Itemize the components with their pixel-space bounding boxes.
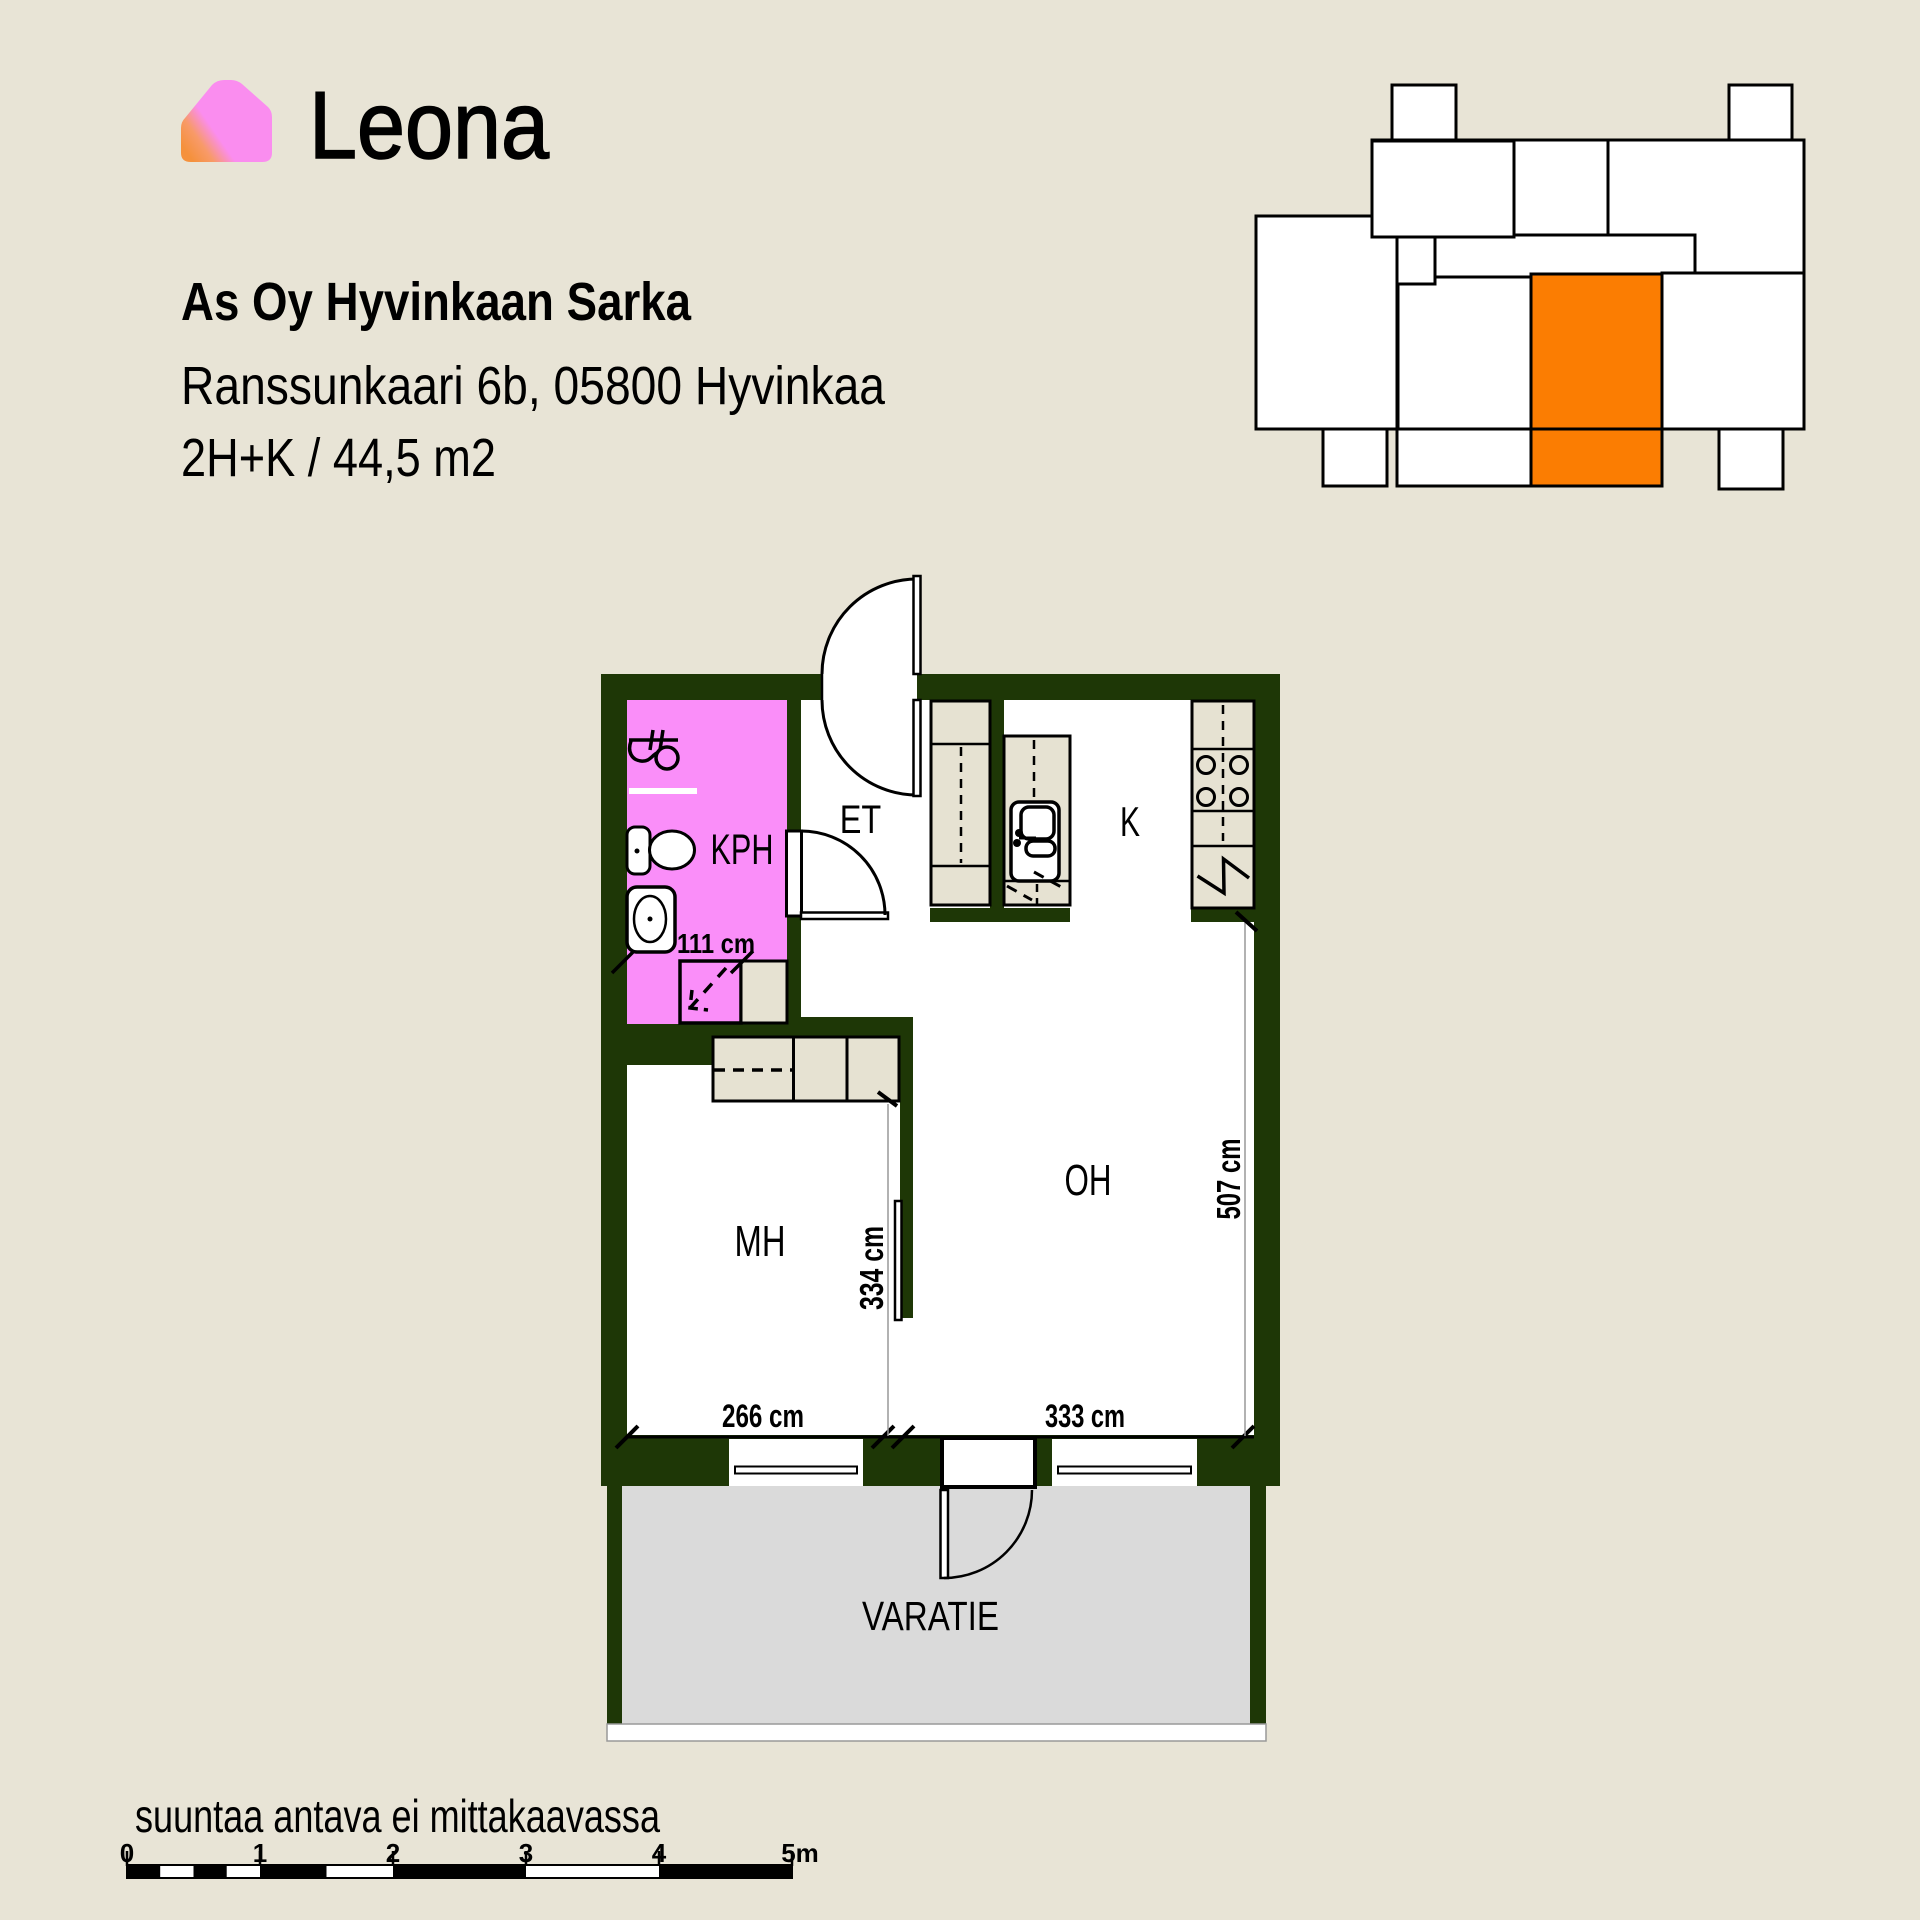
svg-text:334 cm: 334 cm [853,1226,890,1310]
svg-text:OH: OH [1065,1156,1112,1205]
svg-text:ET: ET [840,798,882,842]
svg-text:As Oy Hyvinkaan Sarka: As Oy Hyvinkaan Sarka [181,272,692,332]
svg-text:2H+K / 44,5 m2: 2H+K / 44,5 m2 [181,428,496,488]
svg-text:Ranssunkaari 6b, 05800 Hyvinka: Ranssunkaari 6b, 05800 Hyvinkaa [181,356,886,416]
svg-text:Leona: Leona [309,72,550,179]
svg-text:0: 0 [120,1838,134,1868]
svg-text:266 cm: 266 cm [722,1398,804,1434]
svg-text:3: 3 [519,1838,533,1868]
svg-text:VARATIE: VARATIE [862,1593,999,1639]
svg-text:KPH: KPH [711,826,774,874]
svg-text:333 cm: 333 cm [1045,1398,1125,1434]
svg-text:5m: 5m [781,1838,819,1868]
svg-text:2: 2 [386,1838,400,1868]
svg-text:K: K [1120,798,1140,845]
svg-text:4: 4 [652,1838,667,1868]
svg-text:111 cm: 111 cm [677,928,755,959]
svg-text:suuntaa antava ei mittakaavass: suuntaa antava ei mittakaavassa [135,1790,660,1842]
svg-text:507 cm: 507 cm [1210,1139,1247,1220]
svg-text:1: 1 [253,1838,267,1868]
svg-text:MH: MH [735,1217,786,1266]
